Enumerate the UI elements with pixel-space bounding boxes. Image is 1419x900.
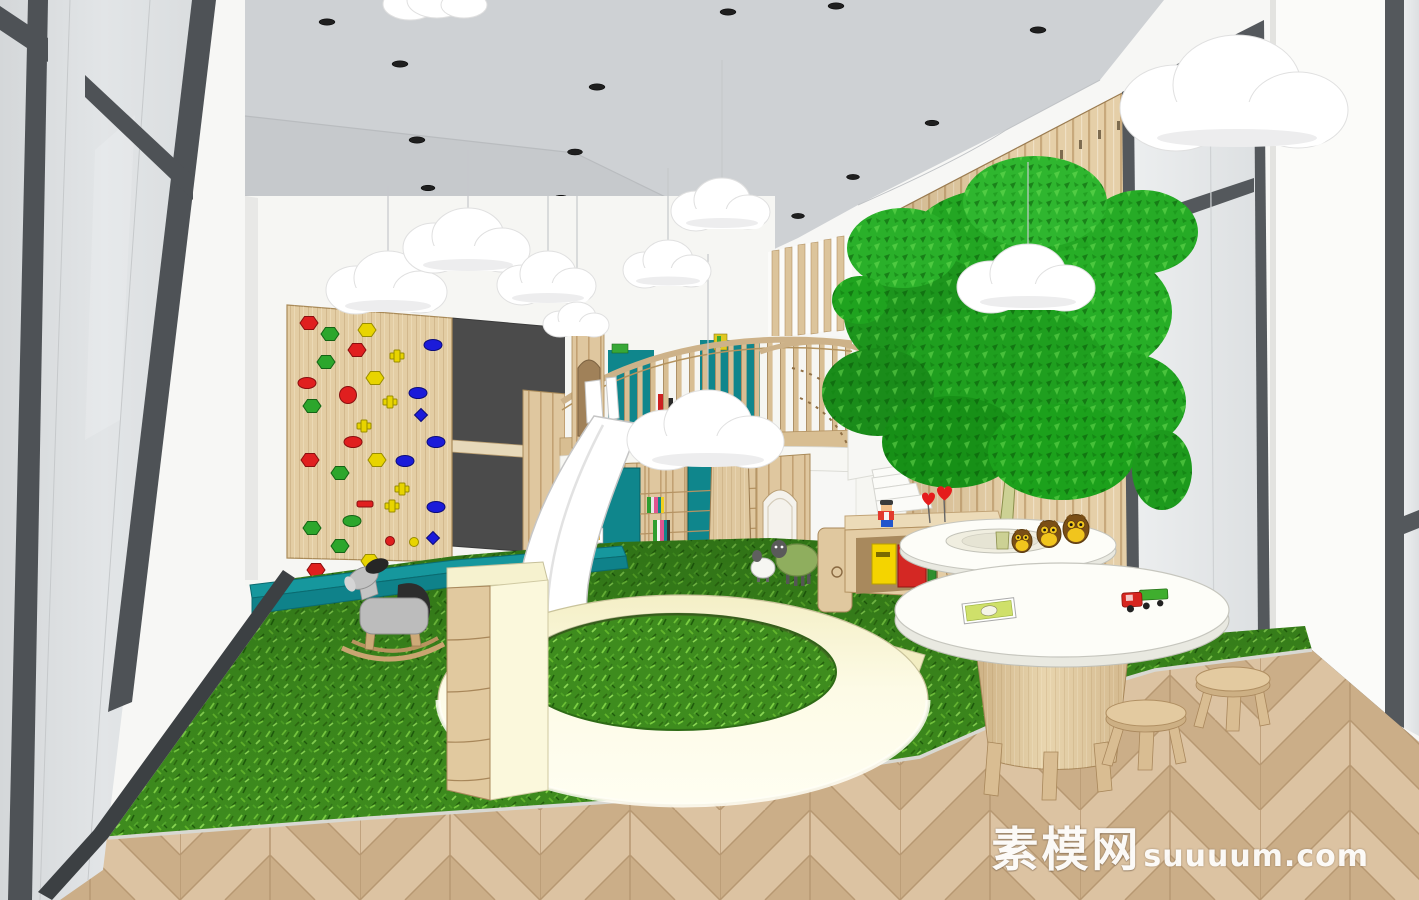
drawer-cabinet xyxy=(447,562,548,800)
cloud xyxy=(383,0,487,20)
playroom-screenshot: 素模网 suuuum.com xyxy=(0,0,1419,900)
climbing-wall xyxy=(287,305,452,577)
playroom-3d-render xyxy=(0,0,1419,900)
window-frame-right xyxy=(1385,0,1404,728)
